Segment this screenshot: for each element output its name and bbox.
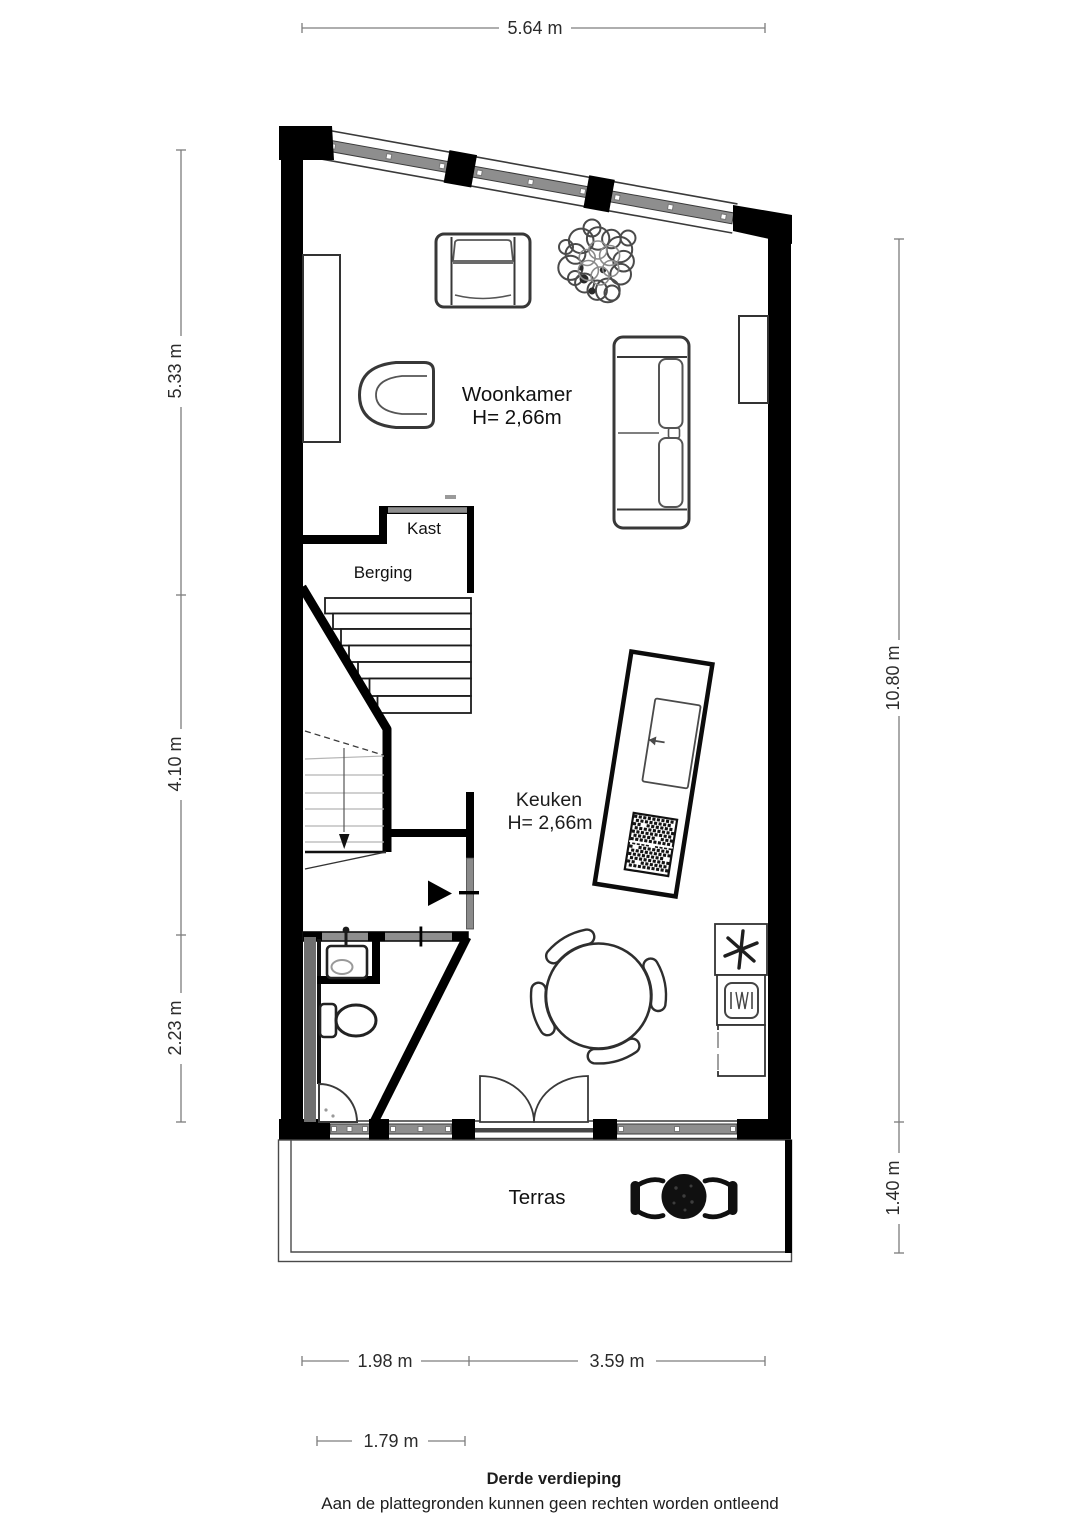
svg-text:1.40 m: 1.40 m <box>883 1160 903 1215</box>
svg-text:H= 2,66m: H= 2,66m <box>507 812 592 834</box>
svg-text:Kast: Kast <box>407 519 441 538</box>
svg-text:Derde verdieping: Derde verdieping <box>487 1470 622 1488</box>
svg-text:H= 2,66m: H= 2,66m <box>472 406 561 429</box>
svg-text:1.98 m: 1.98 m <box>357 1351 412 1371</box>
svg-text:Keuken: Keuken <box>516 789 582 811</box>
svg-text:10.80 m: 10.80 m <box>883 645 903 710</box>
svg-text:Woonkamer: Woonkamer <box>462 383 572 406</box>
svg-text:5.33 m: 5.33 m <box>165 343 185 398</box>
svg-text:5.64 m: 5.64 m <box>507 18 562 38</box>
svg-text:Berging: Berging <box>354 563 413 582</box>
svg-text:Terras: Terras <box>509 1186 566 1209</box>
svg-text:1.79 m: 1.79 m <box>363 1431 418 1451</box>
svg-text:4.10 m: 4.10 m <box>165 736 185 791</box>
svg-text:3.59 m: 3.59 m <box>589 1351 644 1371</box>
svg-text:2.23 m: 2.23 m <box>165 1000 185 1055</box>
svg-text:Aan de plattegronden kunnen ge: Aan de plattegronden kunnen geen rechten… <box>321 1494 778 1513</box>
